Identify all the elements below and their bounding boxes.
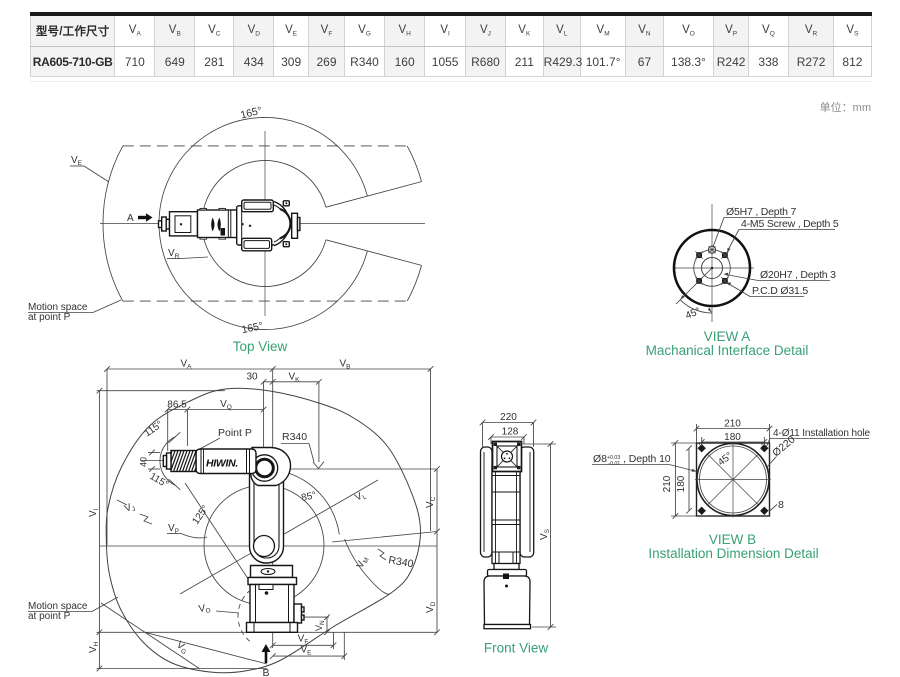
svg-text:VIEW B: VIEW B: [709, 532, 756, 547]
svg-text:VM: VM: [355, 555, 371, 571]
svg-text:VO: VO: [198, 602, 211, 616]
svg-text:115°: 115°: [142, 419, 165, 439]
svg-text:VS: VS: [539, 528, 551, 540]
svg-text:VH: VH: [88, 641, 100, 653]
svg-text:A: A: [127, 213, 134, 224]
svg-text:Installation Dimension Detail: Installation Dimension Detail: [648, 546, 818, 561]
svg-text:40: 40: [139, 457, 149, 467]
svg-text:R340: R340: [387, 554, 414, 570]
svg-text:180: 180: [724, 432, 741, 443]
svg-text:30: 30: [246, 372, 258, 383]
svg-text:at point P: at point P: [28, 312, 71, 323]
svg-text:VD: VD: [425, 601, 437, 613]
svg-text:115°: 115°: [148, 471, 171, 491]
svg-text:Ø20H7 , Depth 3: Ø20H7 , Depth 3: [760, 269, 836, 281]
svg-text:Machanical Interface Detail: Machanical Interface Detail: [646, 343, 809, 358]
svg-text:R340: R340: [282, 431, 307, 443]
svg-text:165°: 165°: [239, 105, 263, 122]
svg-text:VL: VL: [353, 489, 368, 505]
svg-text:45°: 45°: [684, 306, 702, 322]
svg-text:4-M5 Screw , Depth 5: 4-M5 Screw , Depth 5: [741, 218, 839, 230]
svg-text:85°: 85°: [300, 490, 317, 504]
svg-text:VB: VB: [339, 359, 350, 371]
svg-text:Front View: Front View: [484, 641, 549, 656]
svg-text:210: 210: [724, 419, 741, 430]
svg-text:VJ: VJ: [123, 501, 137, 516]
svg-text:Ø5H7 , Depth 7: Ø5H7 , Depth 7: [726, 206, 797, 218]
svg-text:VI: VI: [88, 508, 100, 517]
svg-text:165°: 165°: [241, 320, 265, 336]
svg-text:VIEW A: VIEW A: [704, 329, 751, 344]
svg-text:VE: VE: [300, 645, 312, 657]
svg-text:单位：mm: 单位：mm: [820, 100, 871, 114]
svg-text:86.5: 86.5: [167, 400, 187, 411]
svg-text:B: B: [262, 667, 269, 677]
svg-text:VE: VE: [71, 155, 83, 167]
svg-text:VG: VG: [174, 640, 191, 657]
svg-text:8: 8: [778, 499, 784, 511]
svg-text:HIWIN.: HIWIN.: [206, 458, 238, 470]
svg-text:VN: VN: [314, 620, 326, 631]
svg-text:128: 128: [502, 427, 519, 438]
svg-text:P.C.D Ø31.5: P.C.D Ø31.5: [752, 285, 808, 297]
svg-text:Top View: Top View: [233, 339, 288, 354]
svg-text:180: 180: [676, 475, 687, 492]
svg-text:Point P: Point P: [218, 427, 252, 439]
svg-text:VA: VA: [180, 359, 192, 371]
svg-text:at point P: at point P: [28, 611, 71, 622]
svg-text:VQ: VQ: [220, 399, 232, 411]
svg-text:210: 210: [662, 475, 673, 492]
svg-text:220: 220: [500, 412, 517, 423]
svg-text:VK: VK: [288, 372, 300, 384]
svg-text:VC: VC: [425, 496, 437, 508]
